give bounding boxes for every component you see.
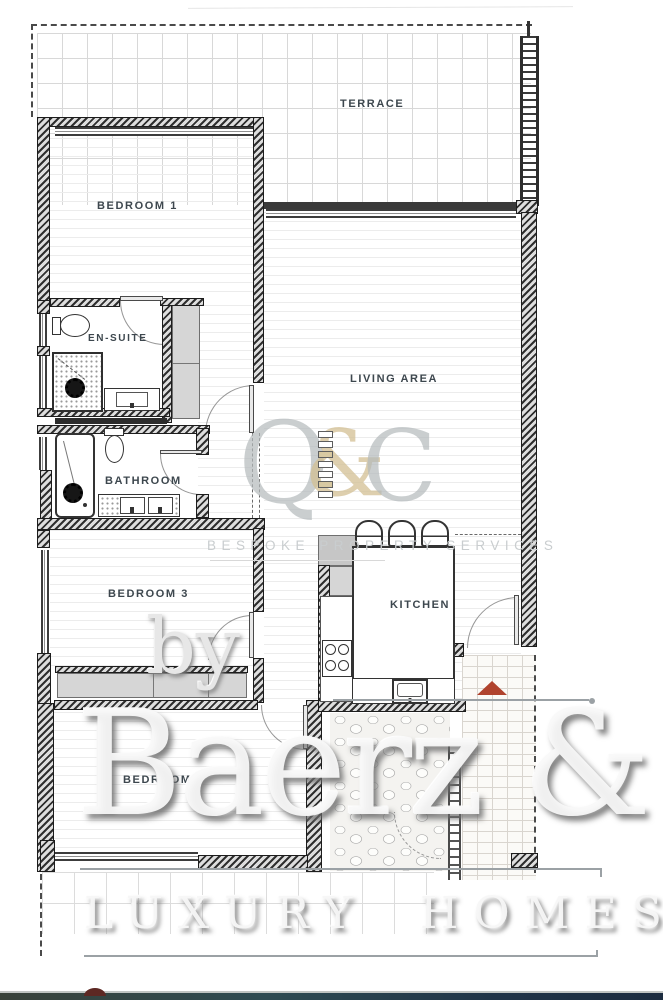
shelf-icon: [318, 471, 333, 478]
bedroom1-window: [55, 127, 253, 136]
wall-segment: [50, 298, 120, 307]
shower-icon: [52, 352, 103, 412]
wall-segment: [511, 853, 538, 868]
room-label-bathroom: BATHROOM: [105, 475, 182, 487]
entry-dashed-line: [455, 534, 521, 535]
toilet-icon: [104, 428, 128, 464]
room-label-bedroom1: BEDROOM 1: [97, 200, 178, 212]
shelf-icon: [318, 441, 333, 448]
wall-segment: [198, 855, 308, 869]
terrace-boundary-top: [31, 24, 532, 26]
watermark-tagline-rule: [210, 560, 385, 561]
shelf-icon: [318, 451, 333, 458]
ensuite-door-leaf: [120, 296, 163, 301]
wardrobe: [172, 304, 200, 419]
bottom-strip-red-dot: [84, 988, 106, 996]
wall-segment: [37, 117, 255, 127]
toilet-icon: [52, 314, 92, 338]
watermark-tagline: BESPOKE PROPERTY SERVICES: [207, 538, 558, 553]
room-label-living: LIVING AREA: [350, 373, 438, 385]
shelf-icon: [318, 481, 333, 488]
wall-segment: [40, 840, 55, 872]
wall-segment: [162, 305, 172, 423]
wall-segment: [521, 212, 537, 647]
watermark-logo-c: C: [362, 418, 437, 516]
floorplan-page: TERRACE BEDROOM 1 EN-SUITE LIVING AREA B…: [0, 0, 663, 1000]
room-label-terrace: TERRACE: [340, 98, 404, 110]
bathtub-icon: [55, 433, 95, 518]
shelf-icon: [318, 461, 333, 468]
watermark-rule-lower: [84, 955, 598, 957]
ensuite-window: [39, 314, 47, 346]
bedroom3-window: [41, 550, 49, 653]
room-label-ensuite: EN-SUITE: [88, 333, 147, 344]
shelf-icon: [318, 431, 333, 438]
wall-segment: [37, 530, 50, 548]
watermark-by: by: [146, 608, 240, 686]
living-window: [266, 209, 516, 218]
wall-track: [55, 418, 167, 424]
shower-window: [39, 356, 47, 408]
plot-boundary-dashed: [40, 874, 42, 956]
kitchen-island: [352, 546, 455, 680]
hob-icon: [322, 640, 352, 677]
sink-icon: [104, 388, 160, 411]
wall-segment: [37, 300, 50, 314]
bathroom-window: [39, 437, 47, 470]
shelf-icon: [318, 491, 333, 498]
bedroom3-door-leaf: [249, 612, 254, 658]
room-label-bedroom3: BEDROOM 3: [108, 588, 189, 600]
wall-segment: [37, 117, 50, 308]
bathroom-door-leaf: [160, 450, 202, 454]
wall-segment: [196, 494, 209, 518]
watermark-brand-sub: LUXURY HOMES: [84, 892, 663, 936]
entry-door-leaf: [514, 595, 519, 645]
terrace-railing: [520, 36, 539, 206]
wall-segment: [253, 117, 264, 383]
hall-door-leaf: [249, 385, 254, 433]
room-label-kitchen: KITCHEN: [390, 599, 450, 611]
watermark-brand: Baerz & Co: [76, 692, 663, 837]
railing-post: [527, 21, 530, 37]
scan-artifact-line: [188, 6, 573, 9]
bedroom1-floor: [50, 129, 253, 299]
watermark-rule-middle: [80, 868, 602, 870]
wall-segment: [37, 653, 51, 705]
terrace-boundary-left: [31, 24, 33, 117]
wall-segment: [37, 518, 265, 530]
bedroom2-window: [55, 852, 198, 861]
wall-segment: [264, 202, 518, 209]
wall-segment: [37, 346, 50, 356]
double-sink-icon: [98, 494, 180, 517]
